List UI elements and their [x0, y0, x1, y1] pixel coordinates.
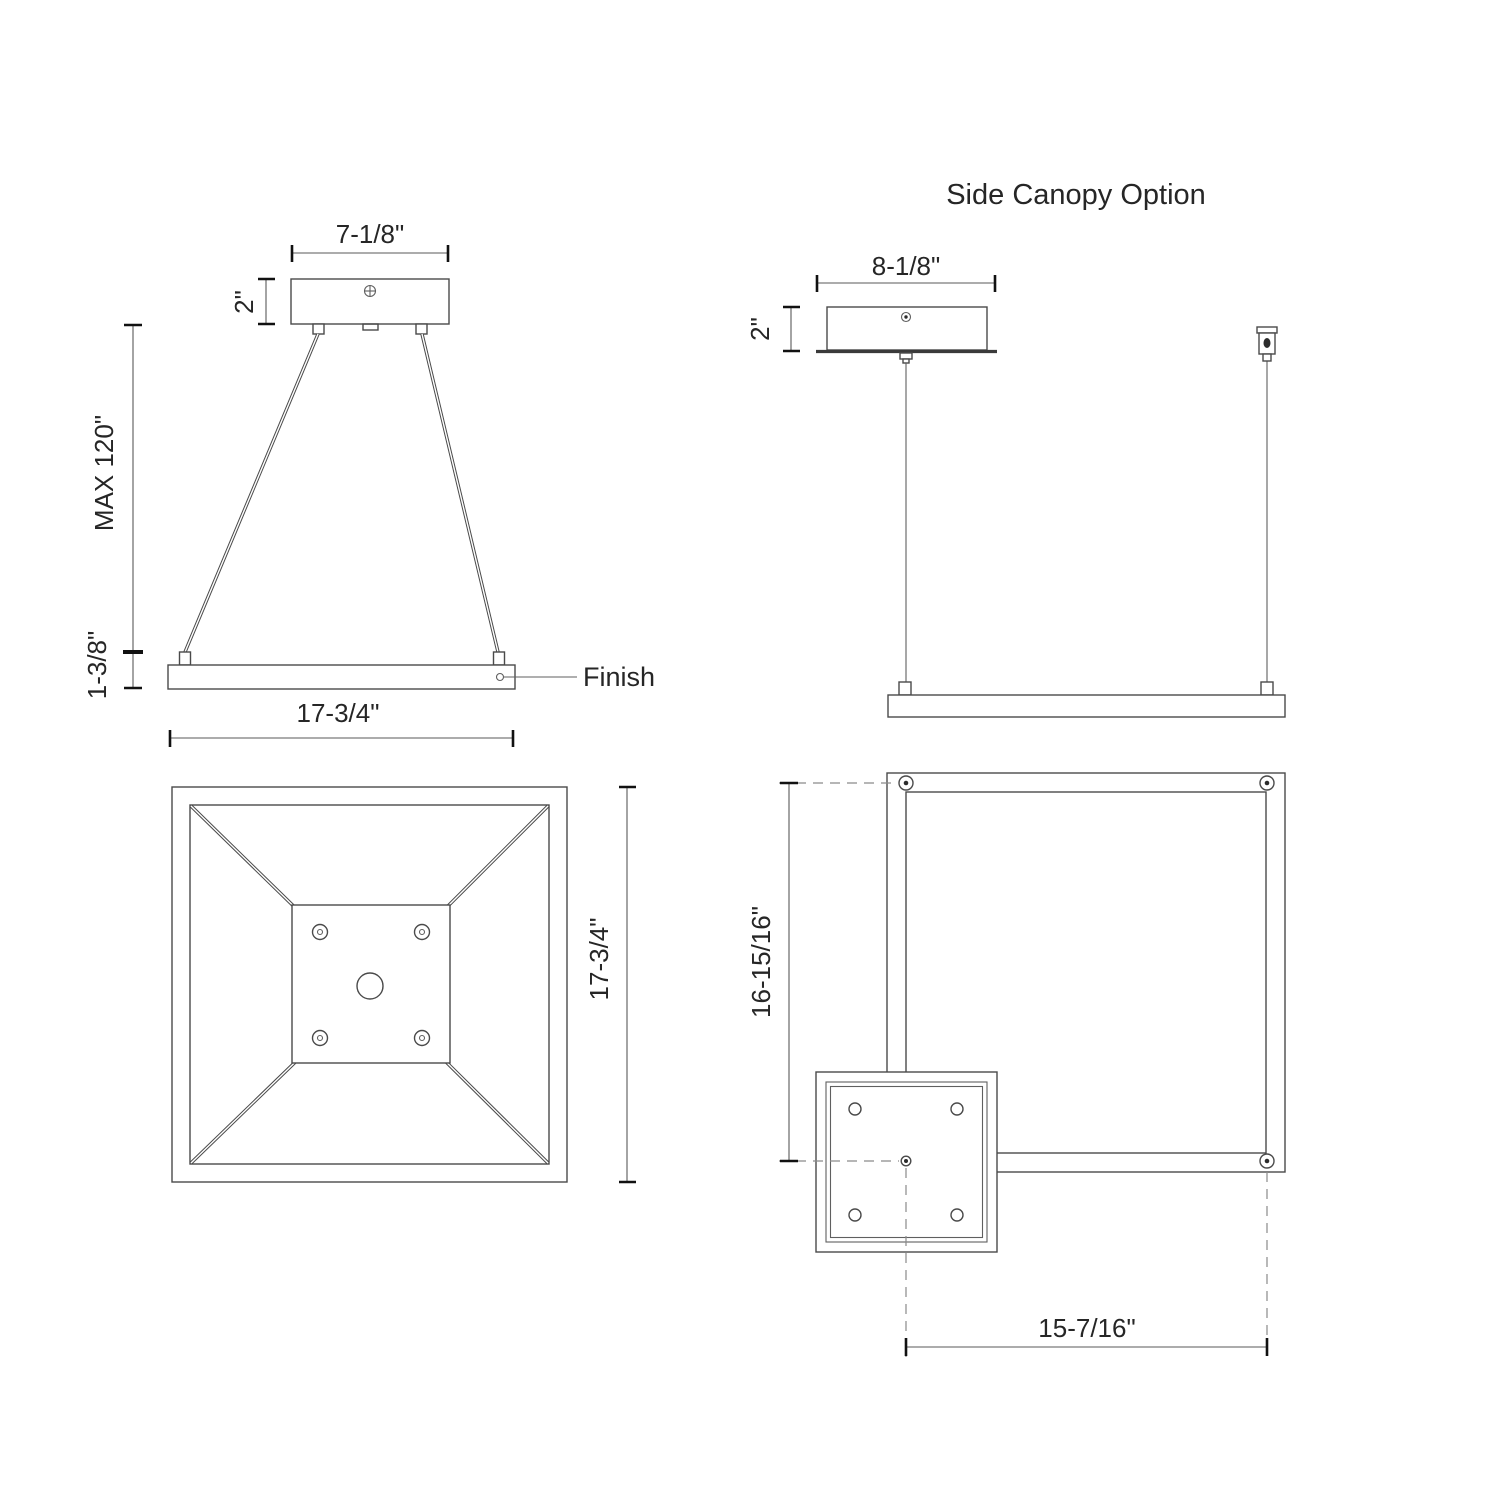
dim-side-plan-vertical: 16-15/16"	[746, 783, 798, 1161]
dim-side-canopy-height: 2"	[745, 307, 800, 351]
cable-gripper	[313, 1031, 328, 1046]
bar-gripper-left	[899, 682, 911, 695]
dim-front-canopy-height: 2"	[229, 279, 275, 324]
cable-gripper	[415, 1031, 430, 1046]
front-fixture-bar	[168, 652, 515, 689]
canopy-center-fitting	[901, 1156, 911, 1166]
fixture-bar	[168, 665, 515, 689]
fixture-bar	[888, 695, 1285, 717]
dim-label-max-suspension: MAX 120"	[89, 415, 119, 531]
cable-fitting-right	[416, 324, 427, 334]
dim-label-side-canopy-height: 2"	[745, 317, 775, 341]
dim-label-side-plan-horizontal: 15-7/16"	[1038, 1313, 1135, 1343]
dim-label-side-canopy-width: 8-1/8"	[872, 251, 941, 281]
corner-cable-point	[1260, 776, 1274, 790]
side-canopy	[816, 307, 997, 363]
dim-label-front-canopy-width: 7-1/8"	[336, 219, 405, 249]
front-canopy	[291, 279, 449, 334]
canopy-screw-icon	[365, 286, 376, 297]
plan-canopy	[292, 905, 450, 1063]
canopy-tab	[363, 324, 378, 330]
finish-callout: Finish	[504, 662, 655, 692]
front-suspension-cables	[185, 334, 498, 652]
cable-gripper-under-canopy	[900, 353, 912, 363]
dim-label-front-canopy-height: 2"	[229, 290, 259, 314]
canopy-screw-icon	[902, 313, 911, 322]
extension-lines	[779, 783, 1267, 1357]
dim-side-canopy-width: 8-1/8"	[817, 251, 995, 292]
side-canopy-plan-view: 16-15/16" 15-7/16"	[746, 773, 1285, 1357]
cable-anchor-fitting	[1257, 327, 1277, 361]
cable-gripper	[313, 925, 328, 940]
view-title: Side Canopy Option	[946, 179, 1206, 211]
corner-cable-point	[1260, 1154, 1274, 1168]
dim-label-front-fixture-width: 17-3/4"	[297, 698, 380, 728]
dim-label-fixture-thickness: 1-3/8"	[82, 631, 112, 700]
dim-label-plan-fixture-depth: 17-3/4"	[584, 918, 614, 1001]
dim-front-fixture-width: 17-3/4"	[170, 698, 513, 747]
cable-fitting-left	[313, 324, 324, 334]
side-canopy-elevation-view: Side Canopy Option 8-1/8" 2"	[745, 179, 1285, 717]
dim-front-suspension: MAX 120" 1-3/8"	[82, 325, 143, 699]
corner-cable-point	[899, 776, 913, 790]
dim-side-plan-horizontal: 15-7/16"	[906, 1313, 1267, 1356]
front-elevation-view: 7-1/8" 2"	[82, 219, 655, 747]
dim-plan-fixture-depth: 17-3/4"	[584, 787, 636, 1182]
plan-view: 17-3/4"	[172, 787, 636, 1182]
finish-label: Finish	[583, 662, 655, 692]
bar-gripper-right	[1261, 682, 1273, 695]
spec-drawing: 7-1/8" 2"	[0, 0, 1500, 1500]
side-fixture-bar	[888, 682, 1285, 717]
dim-front-canopy-width: 7-1/8"	[292, 219, 448, 262]
bar-gripper-left	[180, 652, 191, 665]
bar-gripper-right	[494, 652, 505, 665]
dim-label-side-plan-vertical: 16-15/16"	[746, 906, 776, 1018]
side-suspension-cables	[906, 361, 1267, 682]
cable-gripper	[415, 925, 430, 940]
